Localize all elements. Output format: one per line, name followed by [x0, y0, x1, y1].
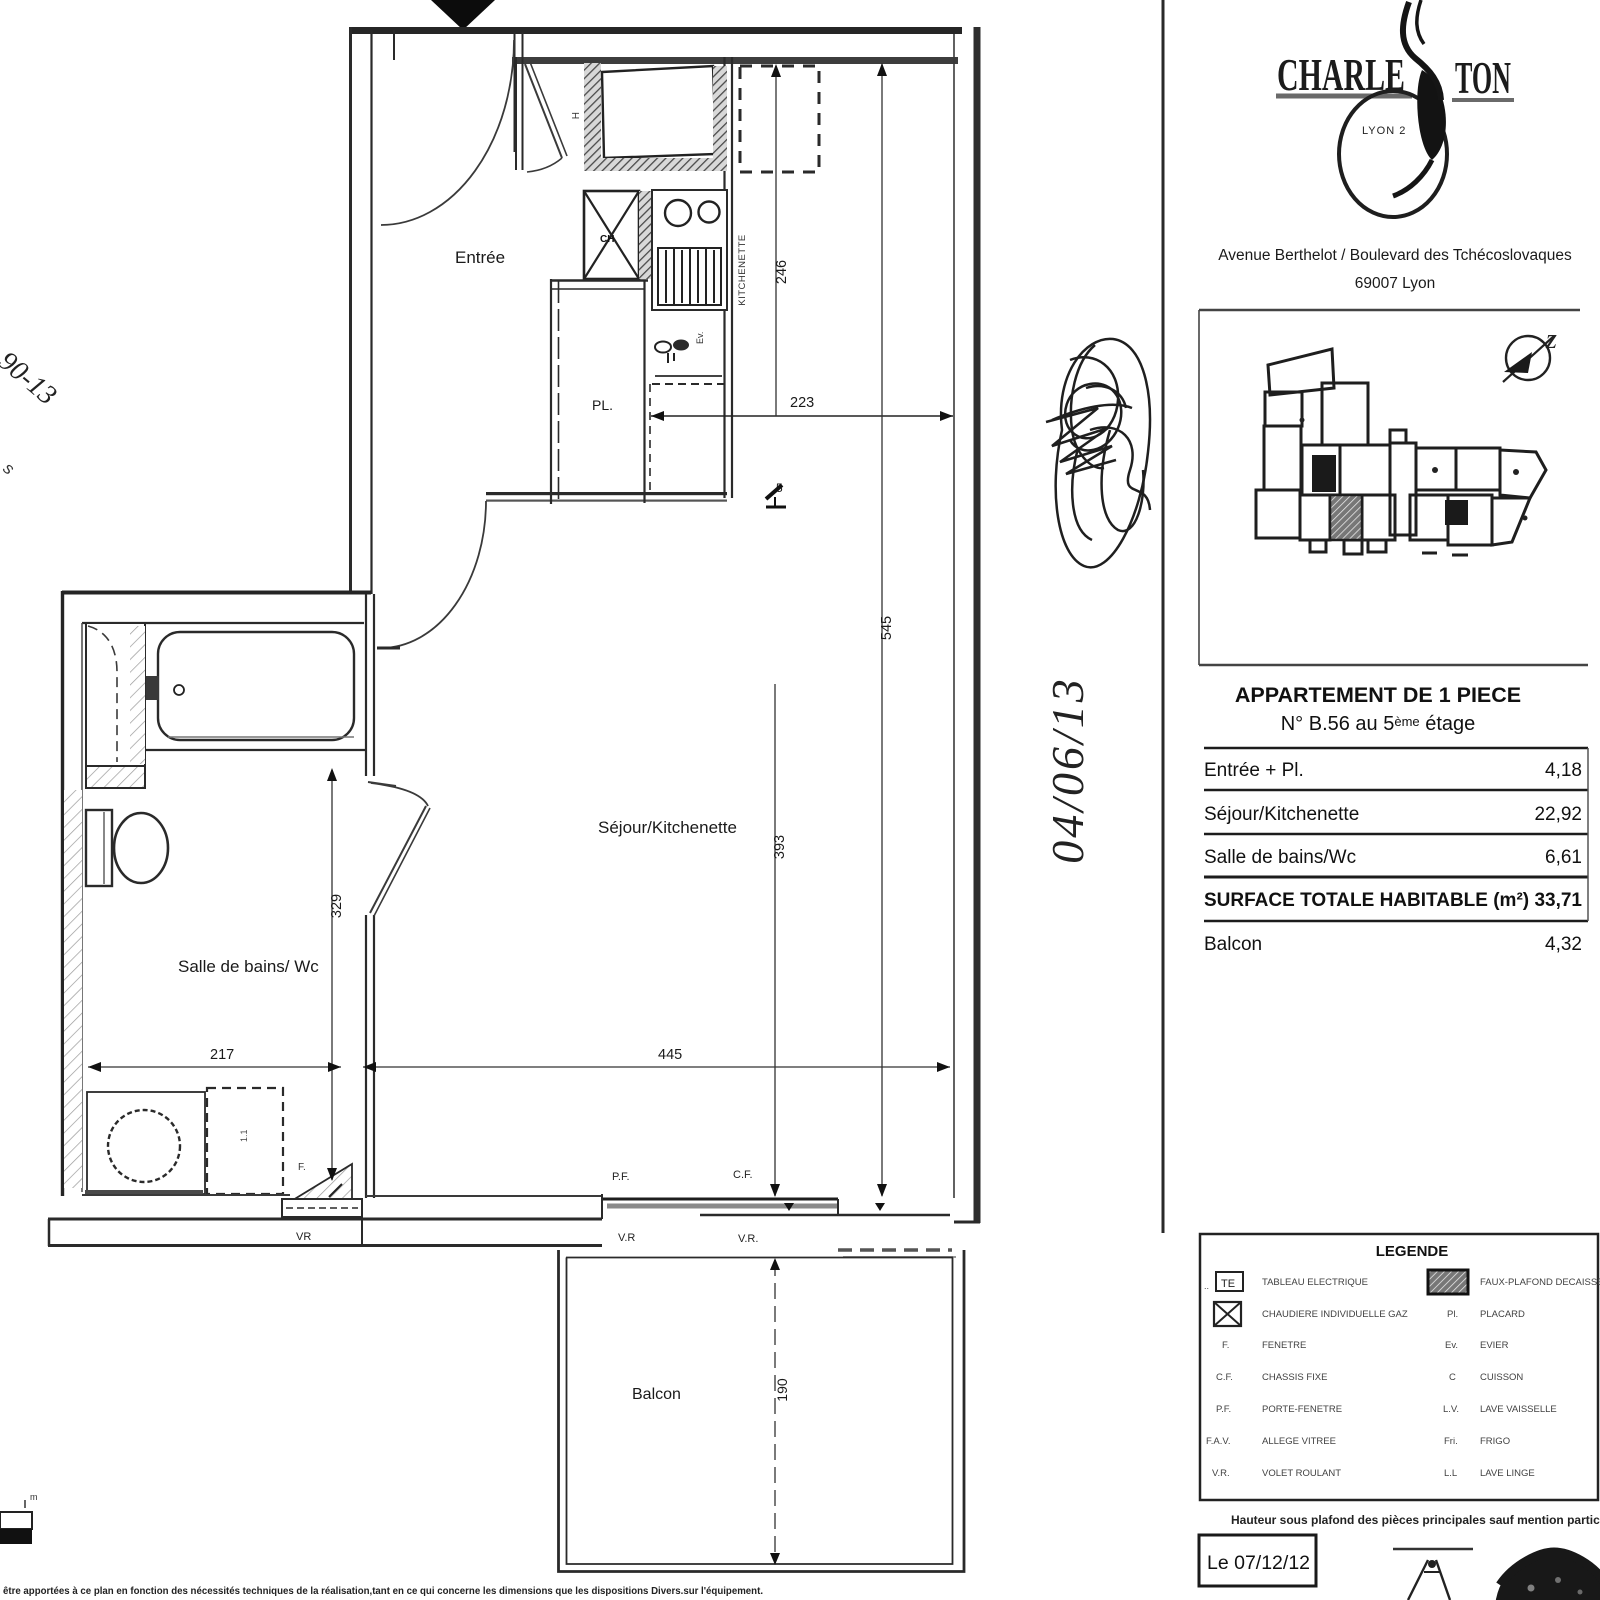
- svg-text:EVIER: EVIER: [1480, 1340, 1509, 1351]
- svg-text:TON: TON: [1455, 52, 1511, 103]
- svg-text:V.R.: V.R.: [1212, 1468, 1230, 1479]
- svg-text:4,18: 4,18: [1545, 760, 1582, 781]
- svg-text:Séjour/Kitchenette: Séjour/Kitchenette: [598, 818, 737, 837]
- svg-text:Balcon: Balcon: [1204, 934, 1262, 955]
- svg-text:C: C: [1449, 1372, 1456, 1383]
- svg-text:LEGENDE: LEGENDE: [1376, 1243, 1449, 1260]
- svg-text:CUISSON: CUISSON: [1480, 1372, 1523, 1383]
- svg-text:m: m: [30, 1492, 38, 1502]
- svg-text:ALLEGE VITREE: ALLEGE VITREE: [1262, 1436, 1336, 1447]
- svg-text:APPARTEMENT DE 1 PIECE: APPARTEMENT DE 1 PIECE: [1235, 683, 1521, 707]
- svg-text:H: H: [569, 112, 580, 119]
- svg-text:Balcon: Balcon: [632, 1386, 681, 1403]
- svg-text:F.: F.: [298, 1162, 306, 1173]
- svg-text:FAUX-PLAFOND DECAISSE: FAUX-PLAFOND DECAISSE: [1480, 1277, 1600, 1288]
- svg-text:Le 07/12/12: Le 07/12/12: [1207, 1552, 1310, 1574]
- svg-text:P.F.: P.F.: [1216, 1404, 1231, 1415]
- svg-text:L.V.: L.V.: [1443, 1404, 1459, 1415]
- svg-text:PORTE-FENETRE: PORTE-FENETRE: [1262, 1404, 1342, 1415]
- svg-text:CH: CH: [600, 234, 614, 245]
- svg-text:F.: F.: [1222, 1340, 1229, 1351]
- svg-text:223: 223: [790, 395, 814, 411]
- svg-text:Salle de bains/Wc: Salle de bains/Wc: [1204, 847, 1356, 868]
- svg-text:FRIGO: FRIGO: [1480, 1436, 1510, 1447]
- svg-text:z: z: [1545, 324, 1557, 355]
- svg-text:246: 246: [774, 260, 790, 284]
- svg-text:6,61: 6,61: [1545, 847, 1582, 868]
- svg-text:Séjour/Kitchenette: Séjour/Kitchenette: [1204, 804, 1359, 825]
- svg-text:Avenue Berthelot / Boulevard d: Avenue Berthelot / Boulevard des Tchécos…: [1218, 247, 1572, 264]
- svg-text:Hauteur sous plafond des pièce: Hauteur sous plafond des pièces principa…: [1231, 1513, 1600, 1527]
- svg-text:Fri.: Fri.: [1444, 1436, 1458, 1447]
- svg-text:217: 217: [210, 1047, 234, 1063]
- svg-text:Salle de bains/ Wc: Salle de bains/ Wc: [178, 957, 319, 976]
- svg-text:393: 393: [772, 835, 788, 859]
- svg-text:KITCHENETTE: KITCHENETTE: [737, 234, 748, 305]
- svg-text:TABLEAU ELECTRIQUE: TABLEAU ELECTRIQUE: [1262, 1277, 1368, 1288]
- svg-text:P.F.: P.F.: [612, 1171, 630, 1183]
- svg-text:CHASSIS FIXE: CHASSIS FIXE: [1262, 1372, 1327, 1383]
- svg-text:CHAUDIERE INDIVIDUELLE GAZ: CHAUDIERE INDIVIDUELLE GAZ: [1262, 1309, 1408, 1320]
- svg-text:Entrée: Entrée: [455, 248, 505, 267]
- svg-text:Ev.: Ev.: [695, 332, 705, 344]
- svg-text:V.R.: V.R.: [738, 1233, 758, 1245]
- svg-text:VOLET ROULANT: VOLET ROULANT: [1262, 1468, 1341, 1479]
- svg-text:C.F.: C.F.: [1216, 1372, 1233, 1383]
- svg-text:4,32: 4,32: [1545, 934, 1582, 955]
- svg-text:Ev.: Ev.: [1445, 1340, 1458, 1351]
- svg-text:SURFACE TOTALE HABITABLE (m²): SURFACE TOTALE HABITABLE (m²): [1204, 890, 1529, 911]
- svg-text:LYON 2: LYON 2: [1362, 125, 1406, 137]
- svg-text:LAVE VAISSELLE: LAVE VAISSELLE: [1480, 1404, 1557, 1415]
- svg-text:LAVE LINGE: LAVE LINGE: [1480, 1468, 1535, 1479]
- svg-text:..: ..: [1204, 1281, 1209, 1291]
- svg-text:04/06/13: 04/06/13: [1042, 676, 1093, 864]
- svg-text:190: 190: [774, 1378, 790, 1402]
- svg-text:545: 545: [879, 616, 895, 640]
- svg-text:F.A.V.: F.A.V.: [1206, 1436, 1230, 1447]
- svg-text:V.R: V.R: [618, 1232, 635, 1244]
- svg-text:L.L: L.L: [1444, 1468, 1457, 1479]
- svg-text:C.F.: C.F.: [733, 1169, 753, 1181]
- svg-text:33,71: 33,71: [1534, 890, 1582, 911]
- svg-text:VR: VR: [296, 1231, 311, 1243]
- svg-text:PL.: PL.: [592, 397, 613, 413]
- svg-text:TE: TE: [1221, 1278, 1235, 1290]
- svg-text:1.1: 1.1: [239, 1129, 249, 1142]
- svg-text:Pl.: Pl.: [1447, 1309, 1458, 1320]
- svg-text:PLACARD: PLACARD: [1480, 1309, 1525, 1320]
- svg-text:329: 329: [329, 894, 345, 918]
- svg-text:69007 Lyon: 69007 Lyon: [1355, 275, 1435, 292]
- svg-text:Entrée + Pl.: Entrée + Pl.: [1204, 760, 1304, 781]
- svg-text:être apportées à ce plan en fo: être apportées à ce plan en fonction des…: [3, 1586, 763, 1597]
- svg-text:22,92: 22,92: [1534, 804, 1582, 825]
- svg-text:445: 445: [658, 1047, 682, 1063]
- svg-text:FENETRE: FENETRE: [1262, 1340, 1306, 1351]
- svg-text:N° B.56 au 5ème étage: N° B.56 au 5ème étage: [1281, 713, 1476, 735]
